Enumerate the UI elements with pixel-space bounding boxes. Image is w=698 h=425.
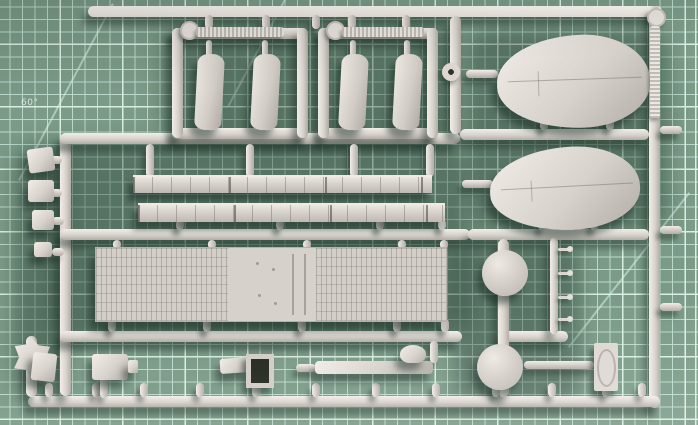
blade-frame1-bottom [172, 128, 308, 139]
small-open-frame [246, 354, 274, 388]
small-pin [558, 272, 570, 275]
small-pin [558, 296, 570, 299]
mat-angle-label: 60° [21, 98, 38, 108]
sprue-gate [52, 248, 64, 256]
deck-texture-left [96, 248, 228, 321]
maker-emblem-icon [647, 8, 666, 27]
maker-logo-oval [597, 349, 616, 387]
curved-blade-4 [392, 53, 423, 130]
maker-logo-tag [594, 343, 618, 391]
small-fitting-block [34, 242, 52, 257]
sprue-gate [430, 341, 438, 363]
sprue-runner-left [60, 138, 71, 396]
sprue-gate [432, 383, 440, 397]
molded-text-ridge [342, 27, 424, 37]
sprue-gate [296, 364, 316, 372]
sprue-gate [660, 126, 682, 134]
sprue-runner-pin-column [550, 238, 558, 334]
curved-blade-2 [250, 53, 281, 130]
round-disc-1 [482, 250, 528, 296]
small-fitting-block [28, 180, 54, 202]
segmented-strip-2 [138, 203, 445, 222]
deck-rivet [258, 294, 261, 297]
sprue-gate [146, 144, 154, 177]
deck-smooth-middle [228, 248, 316, 321]
sprue-gate [372, 383, 380, 397]
sprue-runner-row-b [60, 229, 470, 240]
small-pin [558, 318, 570, 321]
round-disc-2 [477, 344, 523, 390]
molded-text-ridge [196, 27, 284, 37]
ring-grommet [442, 63, 460, 81]
small-fitting-box [92, 354, 128, 380]
molded-text-ridge-vertical [650, 26, 660, 118]
sprue-gate [196, 383, 204, 397]
blade-frame1-right [297, 28, 308, 138]
small-fitting-taper [220, 357, 249, 374]
sprue-gate [660, 303, 682, 311]
deck-rivet [274, 302, 277, 305]
sprue-runner-row-b-right [468, 229, 649, 240]
sprue-gate [312, 15, 320, 29]
sprue-gate [140, 383, 148, 397]
sprue-gate [45, 383, 53, 397]
blade-frame1-left [172, 28, 183, 138]
sprue-gate [312, 383, 320, 397]
blade-frame2-left [318, 28, 329, 138]
deck-rivet [256, 262, 259, 265]
sprue-gate [466, 70, 498, 78]
sprue-gate [92, 383, 100, 397]
sprue-gate [638, 383, 646, 397]
small-fitting-wedge [26, 146, 55, 173]
small-fitting-block [32, 210, 54, 230]
blade-frame2-right [427, 28, 438, 138]
deck-groove [292, 254, 294, 315]
sprue-gate [660, 226, 682, 234]
curved-blade-1 [194, 53, 225, 130]
sprue-runner-row-c [60, 331, 462, 342]
small-fitting-wedge [31, 352, 58, 382]
sprue-runner-top [88, 6, 662, 17]
deck-texture-right [316, 248, 446, 321]
sprue-gate [462, 180, 493, 188]
deck-groove [304, 254, 306, 315]
curved-blade-3 [338, 53, 369, 130]
small-fitting-nub [128, 360, 138, 373]
segmented-strip-1 [133, 175, 432, 193]
sprue-gate [350, 144, 358, 177]
sprue-runner-bottom [28, 396, 660, 407]
blade-frame2-bottom [318, 128, 438, 139]
small-pin [558, 248, 570, 251]
photo-model-kit-sprue: 60° [0, 0, 698, 425]
sprue-gate [246, 144, 254, 177]
sprue-gate [426, 144, 434, 177]
sprue-gate [524, 361, 594, 369]
sprue-runner-row-a-right [460, 129, 649, 140]
deck-plate [95, 247, 447, 322]
deck-rivet [272, 268, 275, 271]
sprue-gate [548, 383, 556, 397]
small-fitting-dome [400, 345, 426, 363]
